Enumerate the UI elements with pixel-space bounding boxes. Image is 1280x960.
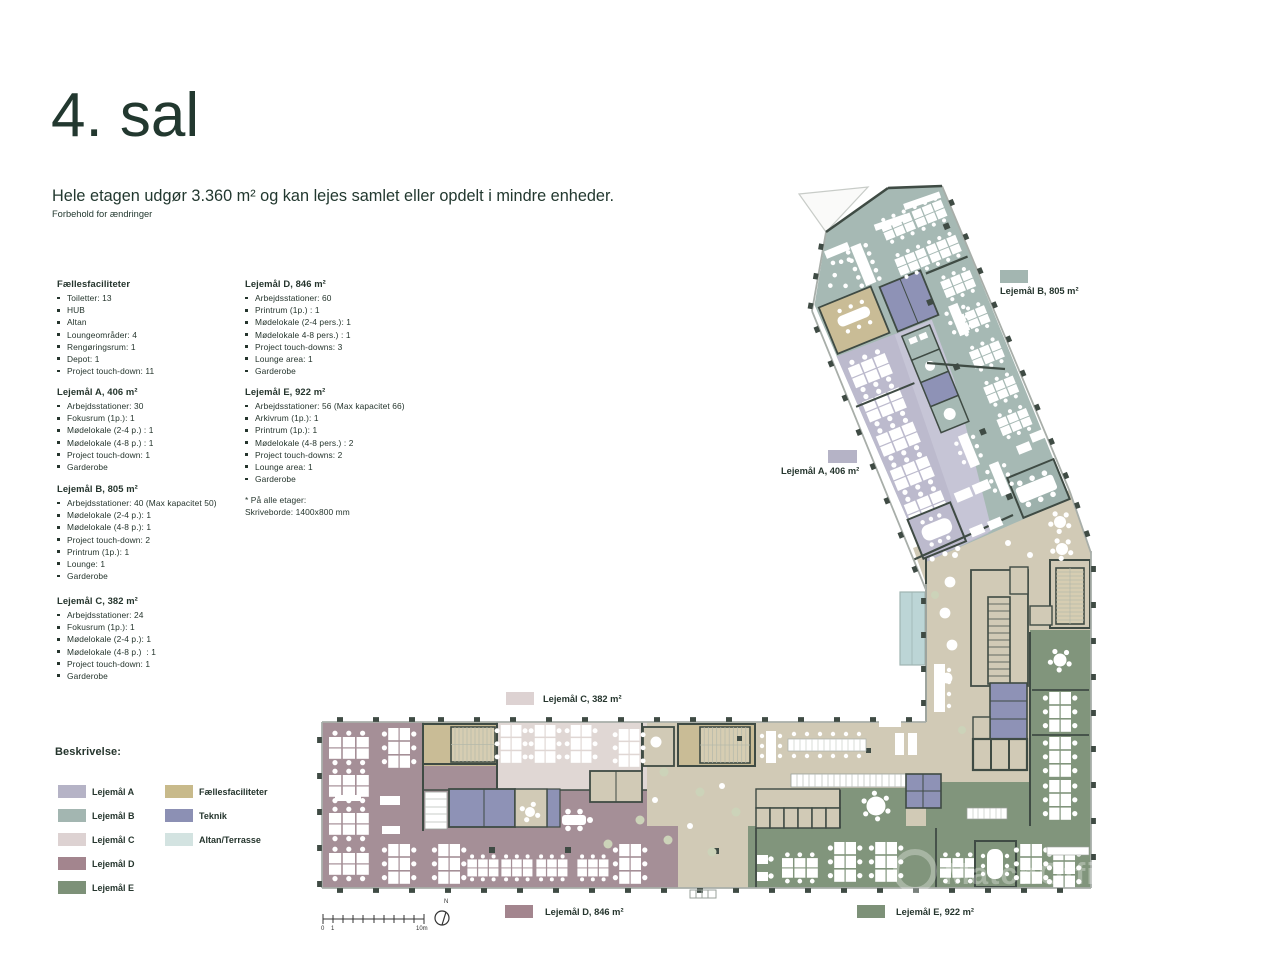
svg-text:N: N (444, 899, 448, 905)
svg-text:1: 1 (331, 926, 335, 932)
svg-text:MatchOffice: MatchOffice (944, 856, 1132, 891)
svg-text:0: 0 (321, 926, 325, 932)
svg-text:10m: 10m (416, 926, 428, 932)
